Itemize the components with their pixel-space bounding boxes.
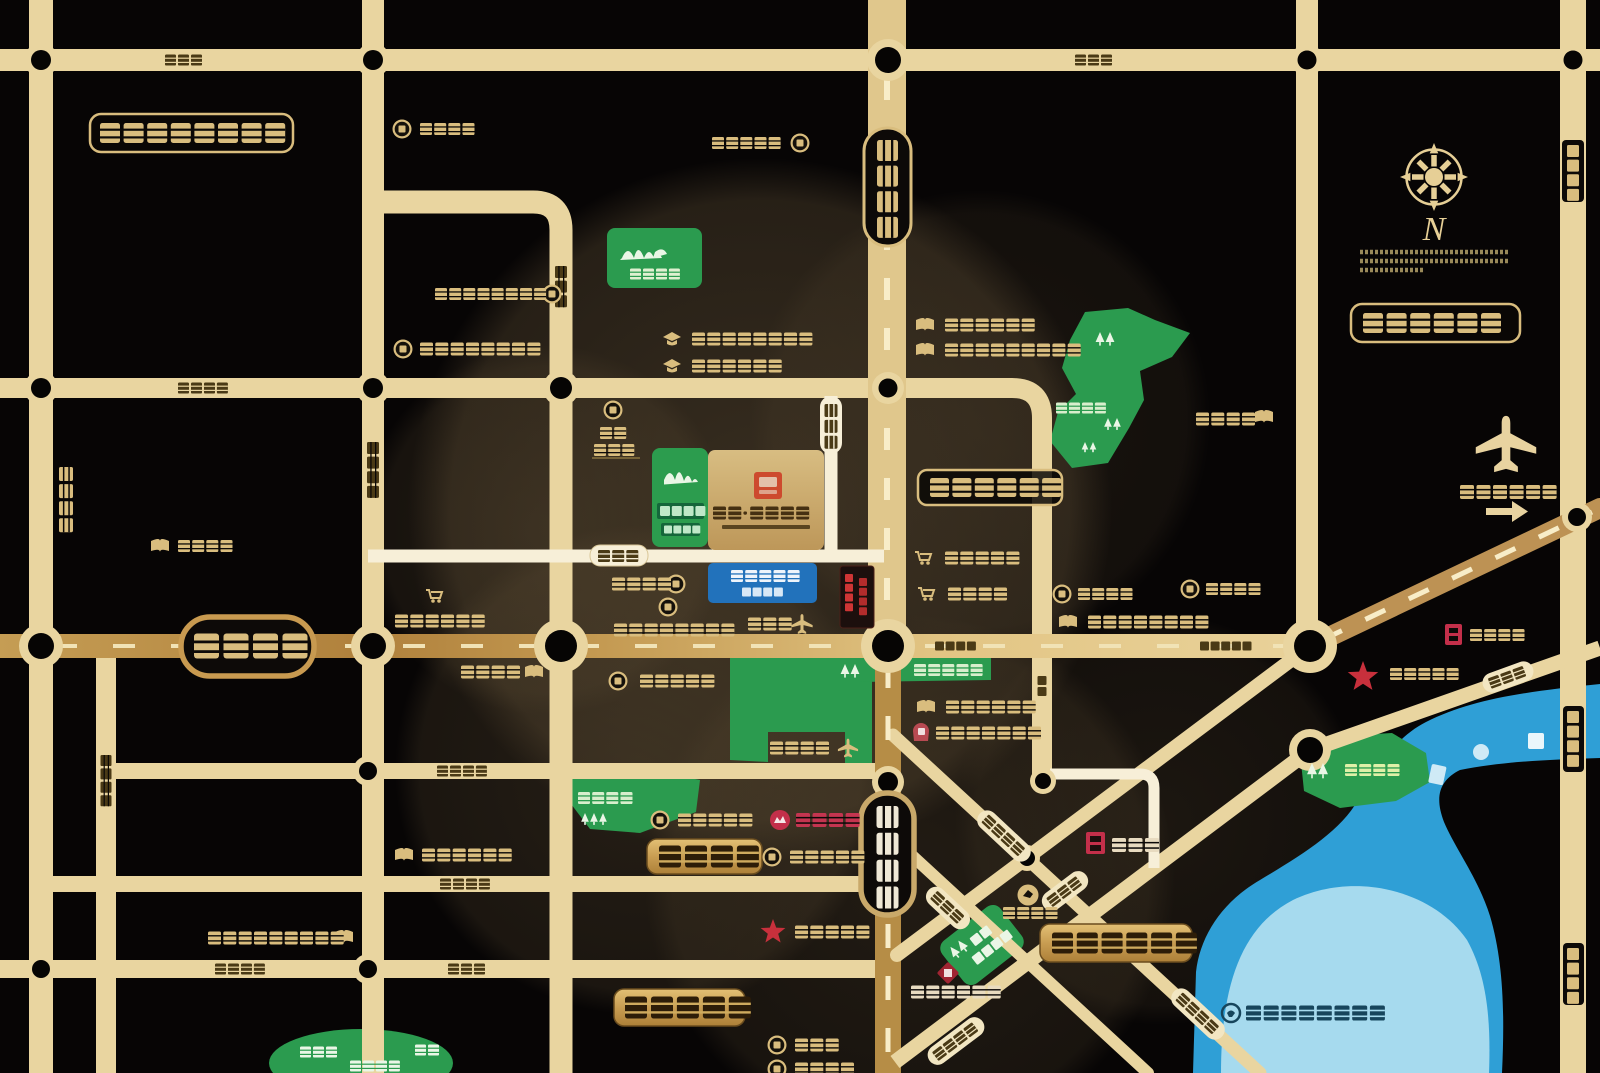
svg-text:N: N [1422,211,1448,248]
